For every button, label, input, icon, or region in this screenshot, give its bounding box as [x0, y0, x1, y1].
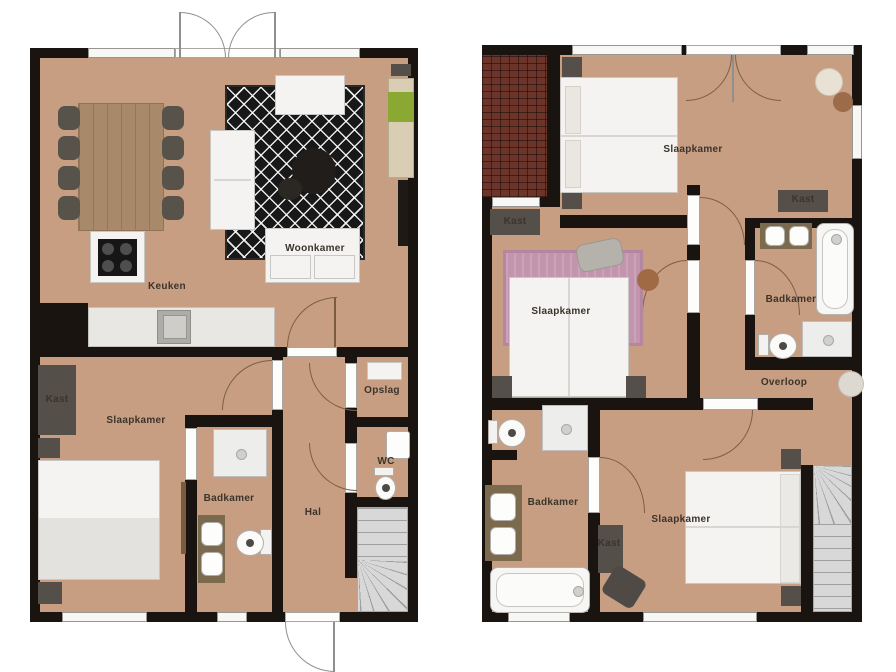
tv-panel	[398, 180, 408, 246]
window	[62, 612, 147, 622]
nightstand	[38, 438, 60, 458]
shower	[213, 429, 267, 477]
wall	[745, 357, 852, 370]
floorplan-canvas: Keuken Woonkamer Kast Slaapkamer Badkame…	[0, 0, 896, 672]
room-label-badkamer: Badkamer	[189, 492, 269, 505]
room-label-badkamer-bottom: Badkamer	[511, 496, 595, 509]
wall	[547, 45, 560, 207]
front-door-sill	[285, 612, 340, 622]
room-label-overloop: Overloop	[742, 376, 826, 389]
room-label-kast-left: Kast	[490, 215, 540, 228]
burner	[120, 260, 132, 272]
wall	[758, 398, 813, 410]
wall	[337, 347, 418, 357]
shower-drain	[561, 424, 572, 435]
nightstand	[626, 376, 646, 398]
door-swing-arc	[228, 12, 274, 58]
sink-icon	[765, 226, 785, 246]
room-label-keuken: Keuken	[125, 280, 209, 293]
bathtub	[490, 567, 590, 613]
nightstand	[781, 586, 801, 606]
sofa-cushion-line	[214, 179, 251, 181]
side-table	[278, 178, 302, 200]
sofa-bottom	[265, 228, 360, 283]
sink-icon	[490, 527, 516, 555]
room-label-badkamer-top: Badkamer	[749, 293, 833, 306]
cooktop-icon	[98, 239, 137, 276]
window	[852, 105, 862, 159]
nightstand	[562, 193, 582, 209]
door-swing-arc	[285, 622, 335, 672]
dining-chair	[162, 166, 184, 190]
ground-floor-plan: Keuken Woonkamer Kast Slaapkamer Badkame…	[30, 48, 418, 622]
stair-treads	[814, 524, 852, 612]
bathroom-top-door-jamb	[745, 260, 755, 315]
bed-split-line	[561, 135, 677, 137]
window	[88, 48, 175, 58]
window	[572, 45, 682, 55]
shower	[542, 405, 588, 451]
wall	[801, 465, 813, 612]
burner	[120, 243, 132, 255]
staircase	[813, 465, 852, 612]
bedroom-door-jamb	[272, 360, 283, 410]
shower-drain	[823, 335, 834, 346]
dining-chair	[162, 106, 184, 130]
toilet-icon	[375, 476, 396, 500]
bed	[560, 77, 678, 193]
decor-item	[391, 64, 411, 76]
door-swing-arc	[180, 12, 226, 58]
room-label-slaapkamer: Slaapkamer	[86, 414, 186, 427]
door-leaf	[334, 297, 336, 347]
sink-icon	[201, 522, 223, 546]
room-label-kast: Kast	[34, 393, 80, 406]
window	[217, 612, 247, 622]
sofa-cushion	[270, 255, 311, 279]
window	[807, 45, 854, 55]
window	[643, 612, 757, 622]
toilet-icon	[769, 333, 797, 359]
bed	[509, 277, 629, 397]
window	[280, 48, 360, 58]
bedroom-mid-door-jamb	[687, 260, 700, 313]
wall	[482, 450, 517, 460]
room-label-woonkamer: Woonkamer	[267, 242, 363, 255]
sofa-cushion	[314, 255, 355, 279]
bedroom-top-door-jamb	[687, 195, 700, 245]
storage-shelf	[367, 362, 402, 380]
wall	[345, 417, 418, 427]
wall	[560, 215, 687, 228]
bed-split-line	[686, 526, 800, 528]
dining-chair	[58, 196, 80, 220]
upper-floor-plan: Slaapkamer Kast Kast Badkamer Overloop S…	[482, 45, 862, 622]
pouf	[838, 371, 864, 397]
burner	[102, 243, 114, 255]
wall	[30, 347, 287, 357]
sink-icon	[789, 226, 809, 246]
shower-drain	[236, 449, 247, 460]
dining-chair	[58, 166, 80, 190]
room-label-kast-right: Kast	[778, 193, 828, 206]
burner	[102, 260, 114, 272]
room-label-kast-bottom: Kast	[584, 537, 634, 550]
dining-chair	[162, 196, 184, 220]
stair-winder	[814, 466, 852, 524]
bathtub-inner	[496, 573, 584, 607]
door-leaf	[181, 482, 186, 554]
pillow-zone	[780, 474, 800, 583]
toilet-tank	[374, 467, 394, 476]
kitchen-counter-dark	[30, 303, 88, 347]
kitchen-sink-icon	[157, 310, 191, 344]
wall	[185, 415, 283, 427]
nightstand	[781, 449, 801, 469]
toilet-icon	[236, 530, 264, 556]
window	[492, 197, 540, 207]
wall	[482, 398, 703, 410]
bed-blanket	[39, 518, 159, 579]
plant-green	[388, 92, 414, 122]
pillow	[565, 140, 581, 188]
bathroom-door-jamb	[185, 428, 197, 480]
patio-door-leaf	[274, 12, 276, 58]
front-door-leaf	[333, 622, 335, 672]
pouf	[637, 269, 659, 291]
balcony-door-leaf	[732, 55, 734, 102]
bathtub-drain	[573, 586, 584, 597]
staircase	[357, 507, 408, 612]
pouf	[833, 92, 853, 112]
room-label-slaapkamer-mid: Slaapkamer	[511, 305, 611, 318]
bedroom-bottom-door-jamb	[703, 398, 758, 410]
sofa-left	[210, 130, 255, 230]
pillow	[565, 86, 581, 134]
room-label-wc: WC	[363, 455, 409, 468]
bed-split-line	[568, 278, 570, 396]
dining-chair	[58, 106, 80, 130]
toilet-icon	[498, 419, 526, 447]
kitchen-door-jamb	[287, 347, 337, 357]
room-label-slaapkamer-bottom: Slaapkamer	[631, 513, 731, 526]
sink-basin	[163, 315, 187, 339]
roof-tiles	[482, 55, 547, 197]
dining-chair	[162, 136, 184, 160]
shower	[802, 321, 852, 357]
sideboard	[275, 75, 345, 115]
room-label-opslag: Opslag	[348, 384, 416, 397]
bed	[685, 471, 801, 584]
bed	[38, 460, 160, 580]
bathtub-drain	[831, 234, 842, 245]
room-label-hal: Hal	[285, 506, 341, 519]
window	[508, 612, 570, 622]
stair-winder	[358, 560, 408, 612]
stair-treads	[358, 508, 408, 560]
nightstand	[492, 376, 512, 398]
toilet-tank	[488, 420, 498, 444]
room-label-slaapkamer-top: Slaapkamer	[643, 143, 743, 156]
balcony-door-sill	[686, 45, 781, 55]
nightstand	[38, 582, 62, 604]
sink-icon	[201, 552, 223, 576]
nightstand	[562, 57, 582, 77]
toilet-tank	[758, 334, 769, 356]
dining-table	[78, 103, 164, 231]
dining-chair	[58, 136, 80, 160]
